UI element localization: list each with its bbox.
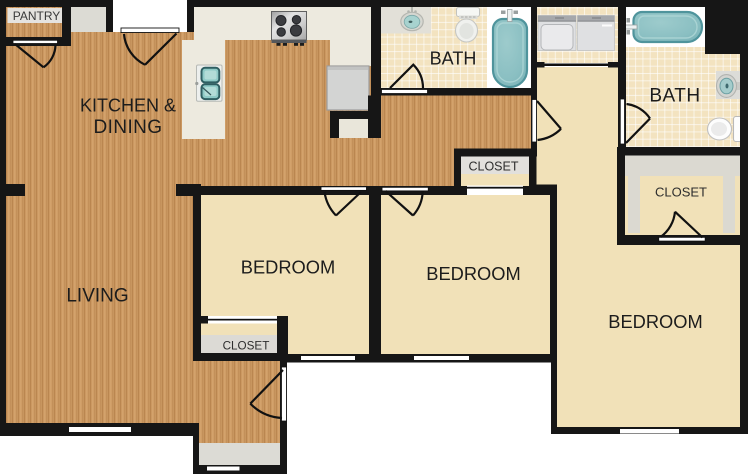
svg-text:BEDROOM: BEDROOM <box>426 263 520 284</box>
svg-text:DINING: DINING <box>94 117 163 138</box>
svg-text:CLOSET: CLOSET <box>655 185 707 200</box>
svg-text:CLOSET: CLOSET <box>223 340 270 353</box>
svg-text:BEDROOM: BEDROOM <box>241 257 335 278</box>
svg-text:KITCHEN &: KITCHEN & <box>80 96 176 116</box>
svg-text:BEDROOM: BEDROOM <box>608 311 702 332</box>
svg-text:BATH: BATH <box>649 86 700 107</box>
svg-text:PANTRY: PANTRY <box>13 9 61 23</box>
svg-text:LIVING: LIVING <box>66 286 128 307</box>
svg-text:CLOSET: CLOSET <box>468 160 518 174</box>
svg-text:BATH: BATH <box>430 49 477 69</box>
